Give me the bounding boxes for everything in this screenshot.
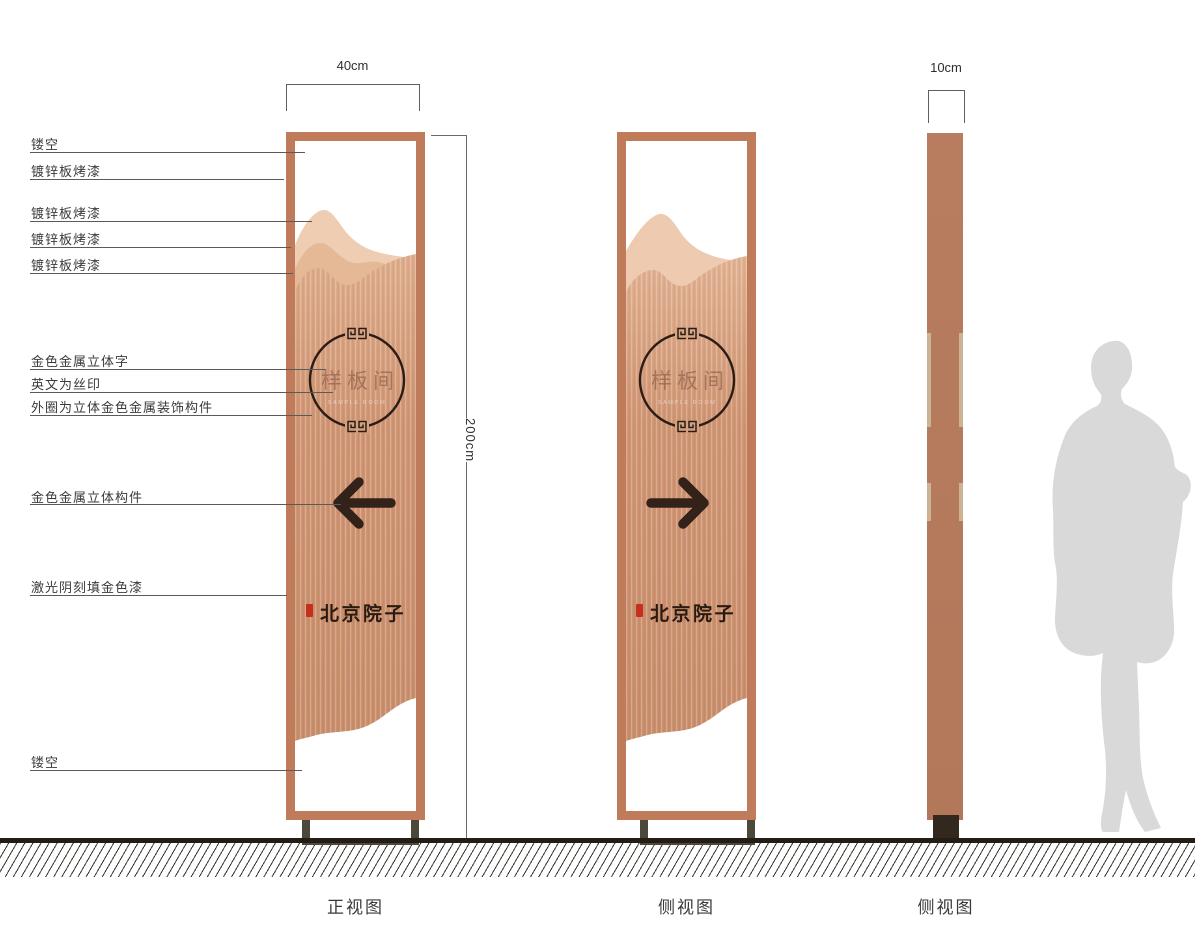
dimension-bracket-side [928,90,965,123]
side-sign-panel: 样板间 SAMPLE ROOM 北京院子 [626,141,747,811]
room-name-text: 样板间 [651,370,729,393]
callout-leader-line [30,221,312,222]
callout-hollow-top: 镂空 [31,134,59,153]
front-sign-panel: 样板间 SAMPLE ROOM 北京院子 [295,141,416,811]
protruding-ring-edge [959,333,963,427]
dimension-bracket-front [286,84,420,111]
room-name-text: 样板间 [321,370,399,393]
protruding-arrow-edge [927,483,931,521]
dimension-height: 200cm [463,418,478,462]
human-scale-silhouette [1043,338,1195,840]
callout-galvanized-1: 镀锌板烤漆 [31,161,101,180]
protruding-arrow-edge [959,483,963,521]
callout-leader-line [30,179,284,180]
callout-galvanized-3: 镀锌板烤漆 [31,229,101,248]
protruding-ring-edge [927,333,931,427]
callout-leader-line [30,504,341,505]
callout-hollow-bottom: 镂空 [31,752,59,771]
side-profile-column [927,133,963,820]
callout-leader-line [30,273,293,274]
callout-leader-line [30,369,326,370]
brand-calligraphy: 北京院子 [320,602,406,625]
ground-line [0,838,1195,843]
ground-hatch [0,843,1195,877]
callout-leader-line [30,595,287,596]
dimension-line-height [466,135,467,838]
side-profile-foot [933,815,959,838]
view-title-profile: 侧视图 [880,893,1012,918]
callout-galvanized-2: 镀锌板烤漆 [31,203,101,222]
view-title-side: 侧视图 [617,893,756,918]
view-title-front: 正视图 [286,893,425,918]
room-name-english: SAMPLE ROOM [328,400,387,406]
side-view-sign: 样板间 SAMPLE ROOM 北京院子 [617,132,756,820]
design-sheet: 镂空 镀锌板烤漆 镀锌板烤漆 镀锌板烤漆 镀锌板烤漆 金色金属立体字 英文为丝印… [0,0,1195,927]
dimension-tick [431,135,466,136]
callout-leader-line [30,247,291,248]
callout-leader-line [30,770,302,771]
red-seal [636,604,643,617]
brand-calligraphy: 北京院子 [650,602,736,625]
dimension-front-width: 40cm [286,58,419,73]
room-name-english: SAMPLE ROOM [658,400,717,406]
callout-leader-line [30,415,312,416]
dimension-side-width: 10cm [919,60,973,75]
red-seal [306,604,313,617]
callout-gold-3d-letters: 金色金属立体字 [31,351,129,370]
callout-galvanized-4: 镀锌板烤漆 [31,255,101,274]
callout-leader-line [30,152,305,153]
person-silhouette-shape [1052,341,1190,832]
callout-laser-engraved-gold: 激光阴刻填金色漆 [31,577,143,596]
callout-english-silkscreen: 英文为丝印 [31,374,101,393]
front-view-sign: 样板间 SAMPLE ROOM 北京院子 [286,132,425,820]
callout-leader-line [30,392,333,393]
callout-gold-ring-decoration: 外圈为立体金色金属装饰构件 [31,397,213,416]
